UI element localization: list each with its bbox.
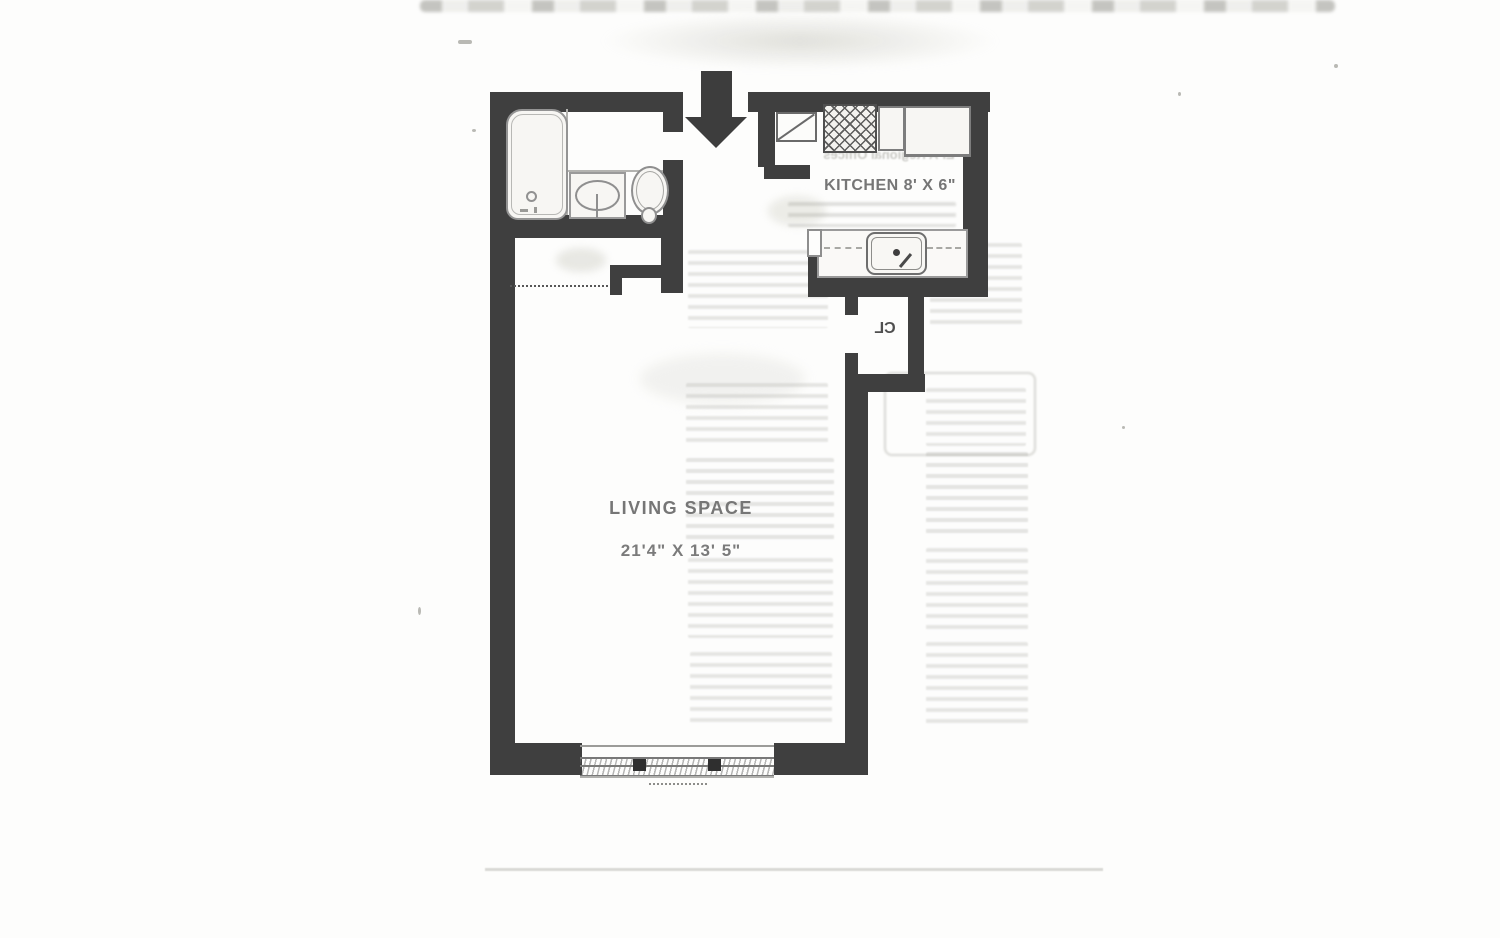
window-mid-rail <box>580 765 774 767</box>
living-space-label: LIVING SPACE <box>600 498 762 519</box>
window-mullion <box>708 759 721 771</box>
wall-cl-closet-stub-top <box>845 297 858 315</box>
scan-speck <box>418 607 421 615</box>
wall-kitchen-bottom <box>808 275 985 297</box>
wall-cl-closet-right <box>908 288 924 383</box>
bathroom-sink-icon <box>569 172 626 219</box>
bleedthrough-text-block <box>788 202 956 227</box>
window-icon <box>580 745 774 747</box>
window-sill <box>580 776 774 778</box>
bathtub-drain <box>526 191 537 202</box>
door-swing-line <box>777 114 815 141</box>
window-icon <box>580 757 774 777</box>
bleedthrough-text-block <box>926 388 1026 446</box>
counter-end-cap <box>807 229 822 257</box>
counter-dash-line <box>927 247 961 249</box>
scan-speck <box>1334 64 1338 68</box>
scan-noise-band <box>420 0 1335 12</box>
wall-living-right <box>845 385 868 775</box>
bathtub-faucet <box>534 207 537 213</box>
bathtub-faucet <box>520 209 528 212</box>
window-dashes <box>649 783 707 785</box>
entry-arrow-icon <box>685 117 747 148</box>
bleedthrough-text-block <box>688 558 833 638</box>
kitchen-label: KITCHEN 8' X 6" <box>820 177 960 195</box>
refrigerator-icon <box>904 106 971 157</box>
dishwasher-icon <box>878 106 905 151</box>
entry-arrow-icon <box>701 71 732 119</box>
bleedthrough-text-block <box>926 452 1028 540</box>
wall-bottom-right <box>774 743 868 775</box>
wall-bottom-left <box>490 743 582 775</box>
window-mullion <box>633 759 646 771</box>
toilet-bowl-inner <box>636 171 664 210</box>
bathtub-icon <box>506 109 568 220</box>
closet-label: CL <box>865 320 905 338</box>
scan-blob <box>556 248 606 272</box>
bleedthrough-text-block <box>690 652 832 726</box>
bathtub-inner-line <box>511 114 563 215</box>
bleedthrough-text-block <box>688 250 828 328</box>
scan-line <box>485 868 1103 871</box>
sink-faucet <box>596 194 598 218</box>
scan-speck <box>472 129 476 132</box>
wall-niche-stub <box>610 265 622 295</box>
wall-kitchen-door-jamb <box>764 165 810 179</box>
closet-rod-dotted-line <box>510 285 608 287</box>
stove-icon <box>823 104 877 153</box>
kitchen-counter <box>817 229 968 278</box>
counter-dash-line <box>824 247 862 249</box>
scanned-floor-plan-page: EPA Regional Offices <box>0 0 1500 938</box>
scan-blob <box>600 12 1000 70</box>
wall-bathroom-door-stub <box>663 112 683 132</box>
scan-speck <box>1122 426 1125 429</box>
bleedthrough-text-block <box>686 383 828 445</box>
wall-kitchen-left-upper <box>758 112 775 167</box>
bleedthrough-text-block <box>926 548 1028 636</box>
door-swing-icon <box>776 112 817 142</box>
kitchen-sink-icon <box>866 232 927 275</box>
scan-speck <box>458 40 472 44</box>
kitchen-sink-drain <box>893 249 900 256</box>
bleedthrough-text-block <box>926 642 1028 726</box>
toilet-base <box>641 207 657 224</box>
living-space-dimensions: 21'4" X 13' 5" <box>600 541 762 561</box>
scan-speck <box>1178 92 1181 96</box>
